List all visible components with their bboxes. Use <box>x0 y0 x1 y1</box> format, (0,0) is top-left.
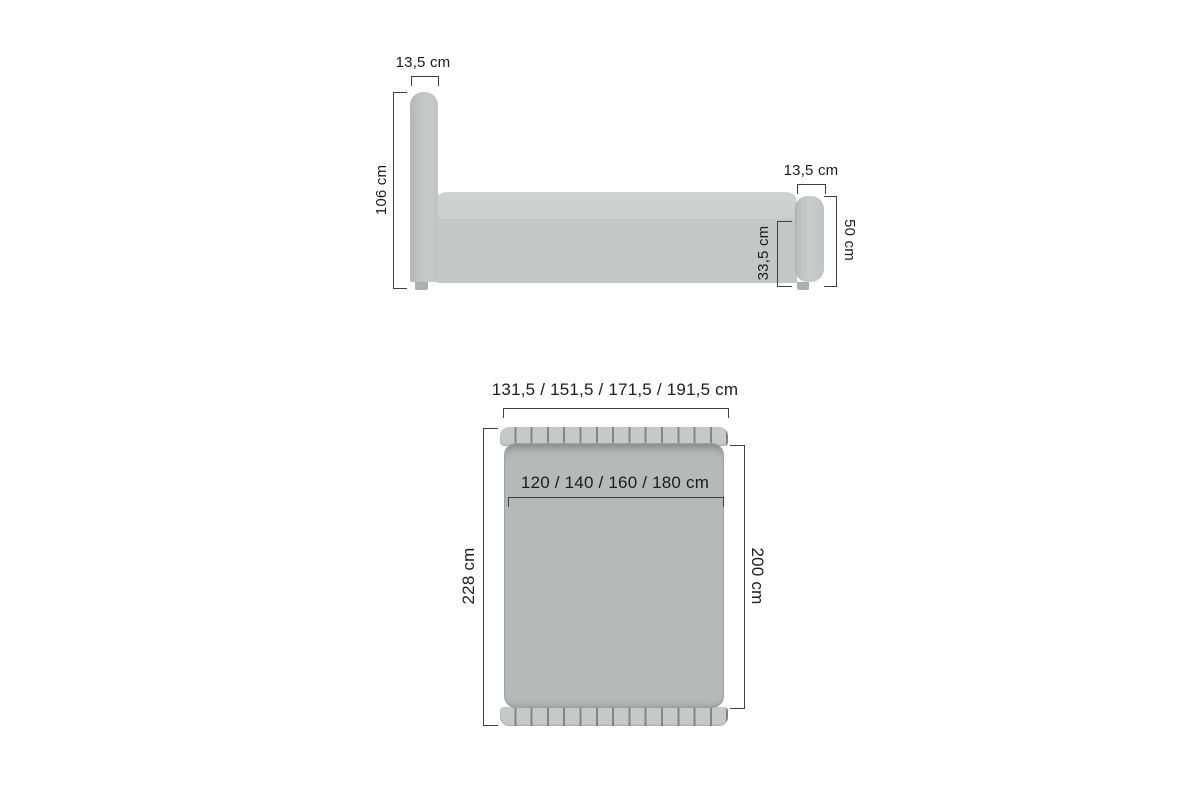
overall-width-label: 131,5 / 151,5 / 171,5 / 191,5 cm <box>455 381 775 399</box>
bed-dimensions-diagram: 13,5 cm 106 cm 13,5 cm 50 cm 33,5 cm 131… <box>0 0 1200 800</box>
mattress-width-label: 120 / 140 / 160 / 180 cm <box>455 474 775 492</box>
overall-length-label: 228 cm <box>460 516 478 636</box>
mattress-length-label: 200 cm <box>748 516 766 636</box>
footboard-top-view <box>500 707 728 726</box>
mattress-width-dimension-line <box>508 497 724 507</box>
overall-width-dimension-line <box>503 408 729 418</box>
mattress-length-dimension-line <box>730 445 745 709</box>
overall-length-dimension-line <box>483 428 498 726</box>
top-view: 131,5 / 151,5 / 171,5 / 191,5 cm 120 / 1… <box>0 0 1200 800</box>
